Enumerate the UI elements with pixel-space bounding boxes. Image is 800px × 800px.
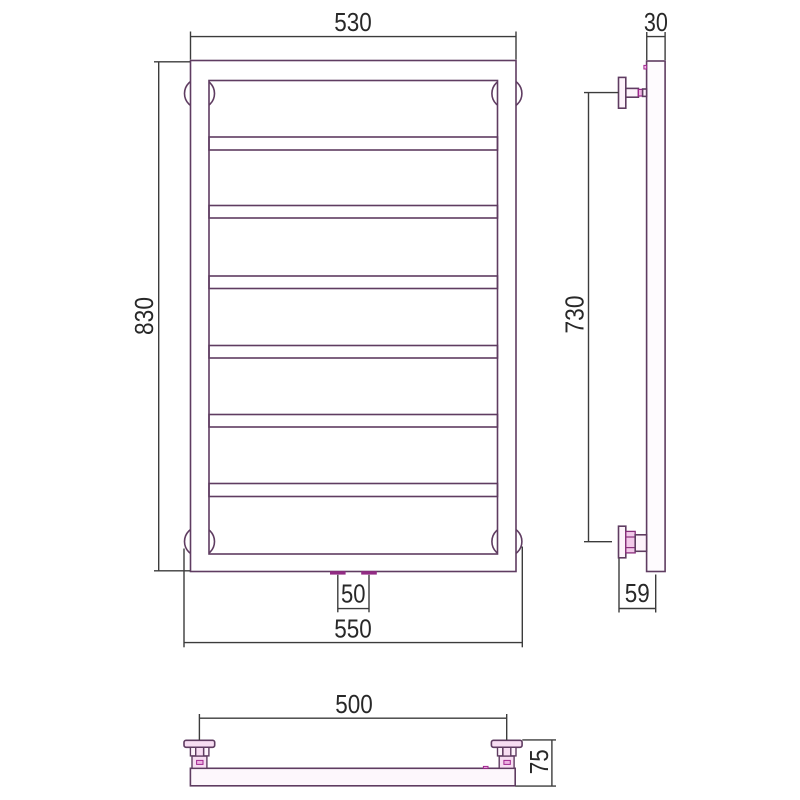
svg-text:830: 830 <box>129 297 159 335</box>
svg-text:75: 75 <box>524 749 554 774</box>
svg-text:550: 550 <box>334 614 372 644</box>
svg-text:59: 59 <box>625 578 650 608</box>
svg-text:30: 30 <box>644 7 668 37</box>
svg-text:500: 500 <box>335 689 373 719</box>
svg-text:730: 730 <box>560 296 590 334</box>
svg-text:530: 530 <box>334 7 372 37</box>
svg-text:50: 50 <box>341 579 366 609</box>
